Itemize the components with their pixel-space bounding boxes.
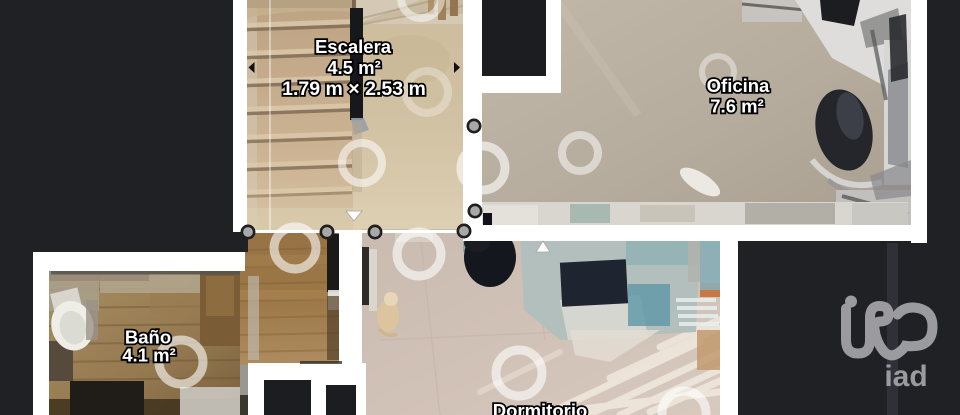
svg-text:4.1 m²: 4.1 m² xyxy=(122,345,175,366)
svg-text:Oficina: Oficina xyxy=(707,75,770,96)
svg-text:4.5 m²: 4.5 m² xyxy=(327,57,380,78)
svg-text:1.79 m × 2.53 m: 1.79 m × 2.53 m xyxy=(282,78,426,100)
svg-text:iad: iad xyxy=(884,360,927,393)
svg-text:Escalera: Escalera xyxy=(315,36,392,57)
svg-text:Dormitorio: Dormitorio xyxy=(493,400,588,415)
svg-text:7.6 m²: 7.6 m² xyxy=(710,96,763,117)
